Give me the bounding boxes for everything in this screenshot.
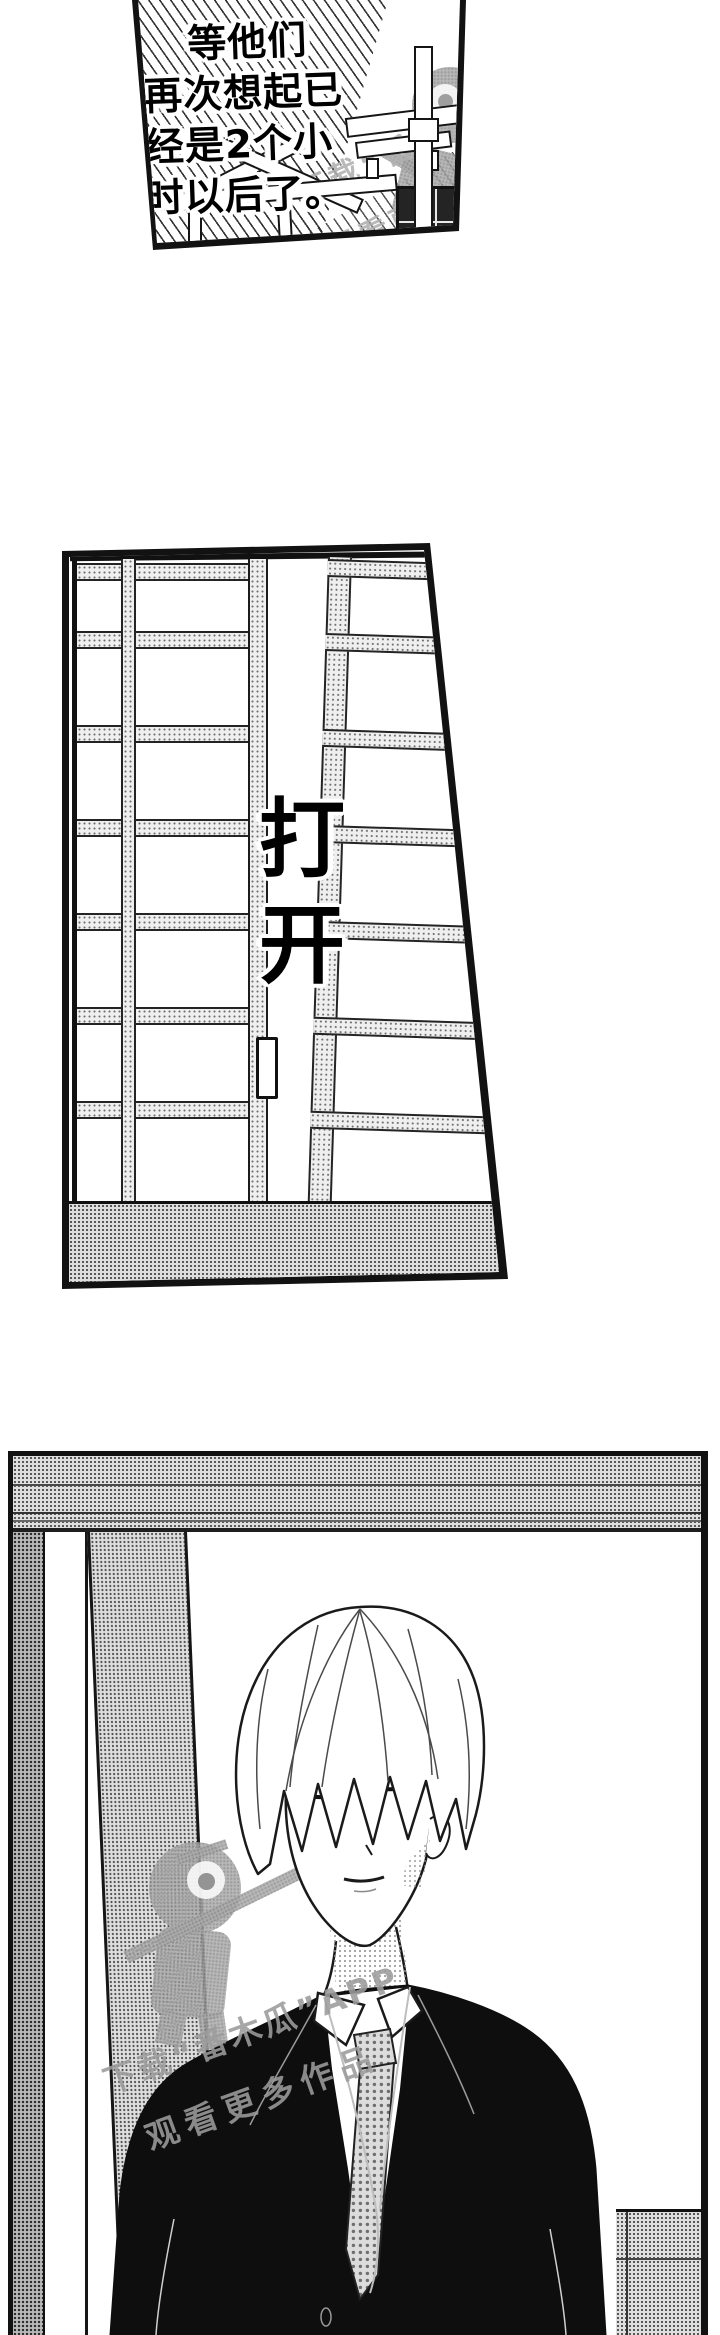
panel-sliding-door: 打 开	[62, 543, 508, 1291]
door-rail	[313, 1017, 493, 1041]
door-handle	[256, 1037, 278, 1099]
door-rail	[77, 1101, 263, 1119]
ceiling-lintel	[13, 1456, 701, 1532]
door-rail	[322, 729, 502, 753]
doorframe-strip-dark	[13, 1532, 45, 2335]
sfx-open-text: 打 开	[254, 787, 350, 999]
door-rail	[77, 913, 263, 931]
man-portrait	[78, 1529, 703, 2335]
door-kick-plate	[69, 1201, 501, 1286]
door-rail	[77, 725, 263, 743]
door-rail	[77, 563, 263, 581]
panel-man-portrait: 下载“番木瓜”APP 观看更多作品	[8, 1451, 708, 2335]
manga-page: 下载“番木瓜”APP 观看更多作品 等他们 再次想起已 经是2个小 时以后了。	[0, 0, 720, 2335]
panel-establishing-shot: 下载“番木瓜”APP 观看更多作品 等他们 再次想起已 经是2个小 时以后了。	[128, 0, 466, 252]
door-stile	[121, 559, 136, 1249]
lintel-line	[13, 1512, 701, 1514]
sfx-char: 打	[254, 787, 350, 893]
lintel-line	[13, 1520, 701, 1522]
caption-line: 时以后了。	[144, 164, 428, 225]
door-rail	[77, 631, 263, 649]
door-rail	[77, 1007, 263, 1025]
door-rail	[325, 633, 505, 657]
lintel-line	[13, 1484, 701, 1486]
door-rail	[327, 559, 507, 583]
door-rail	[310, 1111, 490, 1135]
shoji-door-left	[72, 559, 263, 1249]
caption-line: 等他们	[186, 11, 422, 70]
sfx-char: 开	[254, 893, 350, 999]
door-rail	[77, 819, 263, 837]
narration-caption: 等他们 再次想起已 经是2个小 时以后了。	[141, 11, 428, 225]
